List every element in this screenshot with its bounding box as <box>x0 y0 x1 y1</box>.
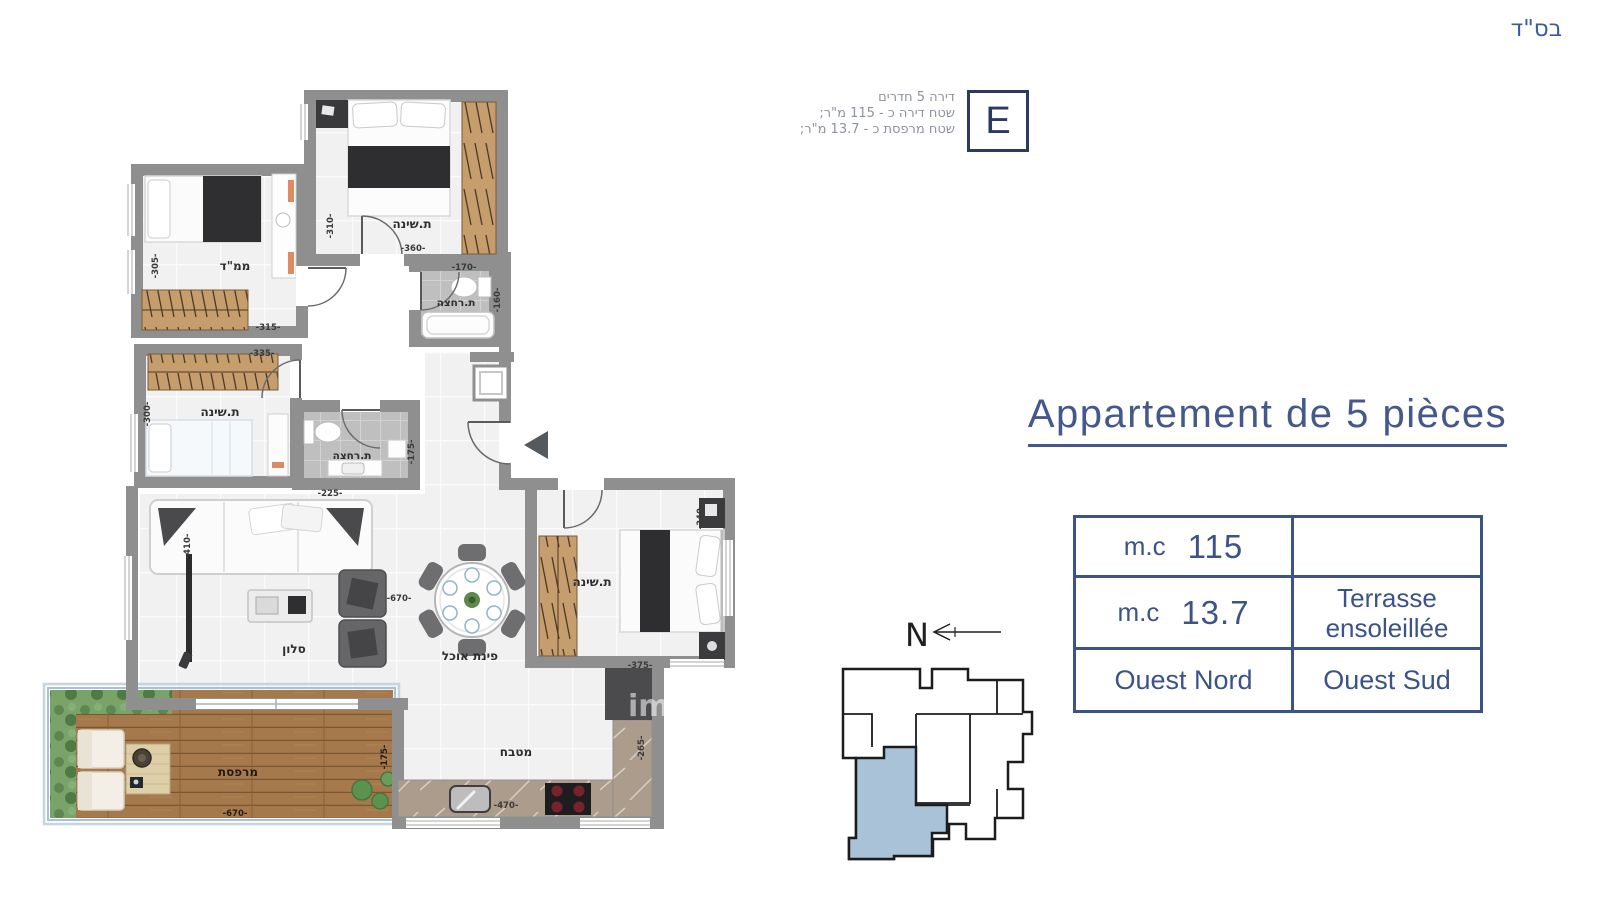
bathtub <box>422 312 494 338</box>
table-cell-empty <box>1294 518 1480 578</box>
label-dining: פינת אוכל <box>442 649 498 663</box>
label-salon: סלון <box>282 642 306 656</box>
dim: -315- <box>256 323 281 333</box>
table-cell-terrace-note: Terrasse ensoleillée <box>1294 578 1480 650</box>
page-title: Appartement de 5 pièces <box>1028 392 1507 447</box>
shower <box>474 366 508 400</box>
wardrobe <box>462 102 496 254</box>
label-bedroom-right: ת.שינה <box>572 575 611 589</box>
entrance-arrow-icon <box>524 431 548 459</box>
unit-label: m.c <box>1124 531 1166 562</box>
dim: -225- <box>318 489 343 499</box>
table-cell-orientation-2: Ouest Sud <box>1294 650 1480 710</box>
label-mamad: ממ"ד <box>220 259 251 273</box>
single-bed <box>145 176 261 242</box>
title-wrap: Appartement de 5 pièces <box>1010 392 1525 447</box>
sliding-door <box>196 699 358 709</box>
dim: -335- <box>250 349 275 359</box>
area-terrace-value: 13.7 <box>1181 594 1249 632</box>
building-footprint <box>843 669 1032 859</box>
double-bed <box>620 530 724 632</box>
dim: -160- <box>493 287 503 312</box>
site-plan: N <box>800 585 1050 877</box>
cabinet <box>268 414 288 476</box>
dim: -175- <box>407 439 417 464</box>
tv-unit <box>186 554 192 662</box>
coffee-table <box>248 590 312 622</box>
compass: N <box>905 616 1001 654</box>
floor-plan: im ת.שינה ממ"ד ת.רחצה ת.שינה ת.רחצה סלון… <box>38 80 750 842</box>
toilet <box>304 420 341 444</box>
table-cell-orientation-1: Ouest Nord <box>1076 650 1294 710</box>
table-cell-area-main: m.c 115 <box>1076 518 1294 578</box>
dim: -340- <box>696 504 706 529</box>
room-bath-2 <box>298 400 414 484</box>
bsd-label: בס"ד <box>1452 16 1562 42</box>
dim: -360- <box>401 244 426 254</box>
counter <box>613 720 652 817</box>
label-terrace: מרפסת <box>218 765 258 779</box>
armchair <box>339 570 386 617</box>
dim: -175- <box>380 744 390 769</box>
door-arc <box>308 268 346 306</box>
room-bedroom-top <box>298 96 502 266</box>
area-main-value: 115 <box>1188 528 1244 566</box>
label-bath-2: ת.רחצה <box>333 450 372 462</box>
window <box>128 414 138 472</box>
dim: -670- <box>387 594 412 604</box>
page: בס"ד E דירה 5 חדרים שטח דירה כ - 115 מ"ר… <box>0 0 1600 900</box>
dim: -410- <box>183 533 193 558</box>
armchair <box>339 620 386 667</box>
dim: -470- <box>494 801 519 811</box>
table-cell-area-terrace: m.c 13.7 <box>1076 578 1294 650</box>
dim: -670- <box>223 809 248 819</box>
apartment-letter-badge: E <box>967 90 1029 152</box>
label-bath-1: ת.רחצה <box>437 297 476 309</box>
window <box>122 556 132 640</box>
dim: -300- <box>143 401 153 426</box>
sink <box>450 786 490 812</box>
apartment-letter: E <box>985 100 1010 143</box>
dim: -170- <box>452 263 477 273</box>
double-bed <box>348 100 450 216</box>
single-bed <box>146 420 252 476</box>
label-bedroom-mid: ת.שינה <box>200 405 239 419</box>
north-label: N <box>905 616 929 654</box>
dim: -305- <box>151 253 161 278</box>
dim: -310- <box>326 213 336 238</box>
dim: -265- <box>637 735 647 760</box>
label-bedroom-top: ת.שינה <box>392 217 431 231</box>
watermark: im <box>628 689 670 724</box>
toilet <box>451 277 491 297</box>
cabinet <box>272 174 296 278</box>
dim: -375- <box>628 661 653 671</box>
stove <box>545 783 591 815</box>
label-kitchen: מטבח <box>500 745 532 759</box>
surface-table: m.c 115 m.c 13.7 Terrasse ensoleillée Ou… <box>1073 515 1483 713</box>
window <box>298 104 308 140</box>
unit-label: m.c <box>1117 597 1159 628</box>
